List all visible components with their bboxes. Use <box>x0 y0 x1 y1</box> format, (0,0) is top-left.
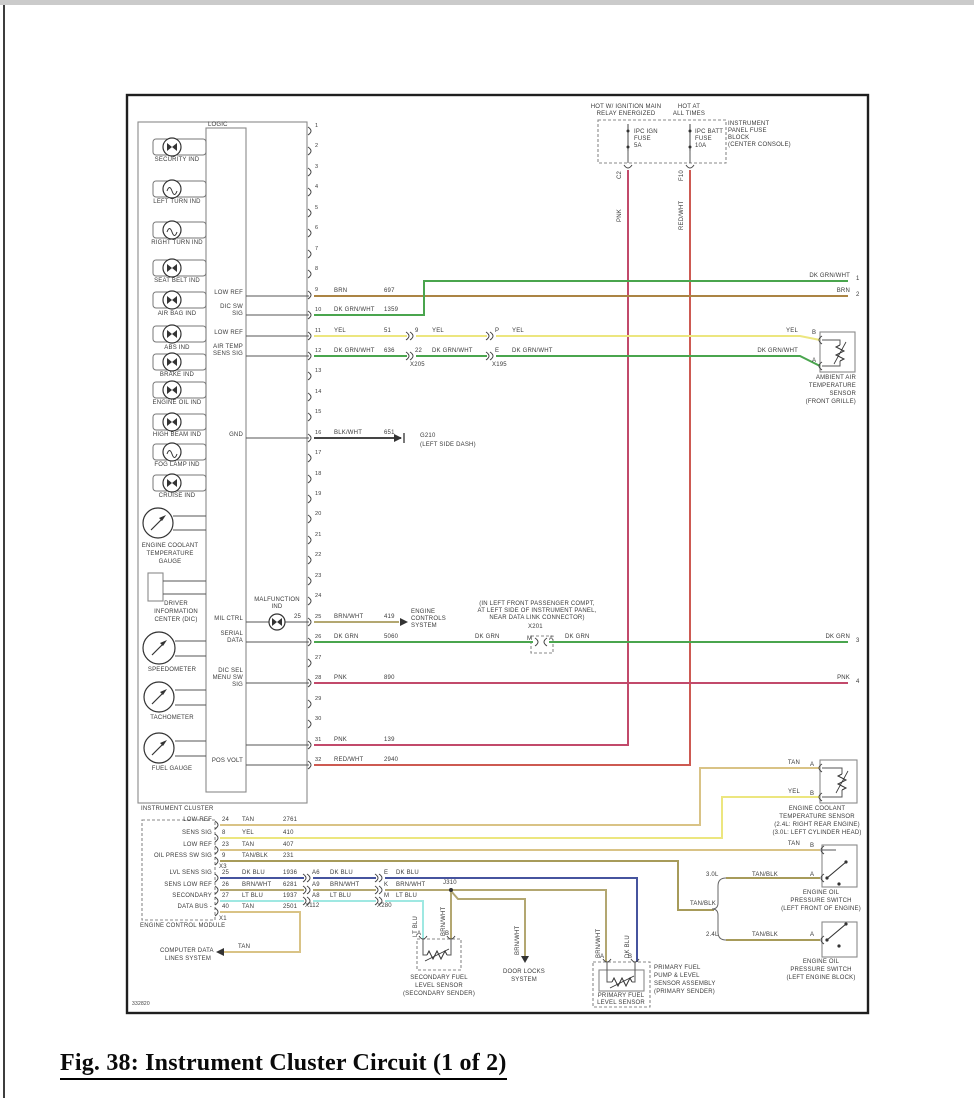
fuse-icon <box>627 130 630 133</box>
ground-icon <box>394 434 402 442</box>
connector-socket-icon <box>624 165 632 168</box>
switch-icon <box>827 862 846 878</box>
connector-pin-icon <box>308 147 311 155</box>
component-box <box>822 845 857 887</box>
diagram-line <box>822 340 840 345</box>
brace-icon <box>712 878 726 940</box>
diagram-line <box>632 962 635 982</box>
connector-gap <box>533 638 549 646</box>
arrow-down-icon <box>521 956 529 963</box>
connector-pin-icon <box>308 209 311 217</box>
wire-yel <box>220 797 820 838</box>
right-turn-ind-icon <box>163 221 181 239</box>
diagram-line <box>822 768 842 774</box>
arrow-left-icon <box>216 948 224 956</box>
wire-dkgrnwht <box>314 356 820 366</box>
arrow-right-icon <box>400 618 408 626</box>
wire-ltblu <box>220 901 423 939</box>
component-box <box>142 820 215 920</box>
component-box <box>206 128 246 792</box>
component-box <box>598 120 726 163</box>
figure-border <box>127 95 868 1013</box>
connector-pin-icon <box>308 515 311 523</box>
connector-pin-icon <box>308 720 311 728</box>
connector-pin-icon <box>308 372 311 380</box>
switch-icon <box>837 944 840 947</box>
connector-pin-icon <box>308 270 311 278</box>
connector-pin-icon <box>308 393 311 401</box>
wire-tanblk <box>220 861 714 910</box>
switch-icon <box>844 922 847 925</box>
connector-pin-icon <box>308 413 311 421</box>
connector-pin-icon <box>308 291 311 299</box>
diagram-line <box>607 962 612 982</box>
connector-pin-icon <box>308 454 311 462</box>
component-box <box>593 962 650 1007</box>
component-box <box>599 970 644 991</box>
connector-pin-icon <box>308 188 311 196</box>
wire-redwht <box>314 170 690 765</box>
figure-caption: Fig. 38: Instrument Cluster Circuit (1 o… <box>60 1050 507 1080</box>
connector-pin-icon <box>308 127 311 135</box>
switch-icon <box>827 924 846 940</box>
connector-pin-icon <box>308 597 311 605</box>
wire-dkgrnwht <box>314 281 848 315</box>
fuse-icon <box>627 146 630 149</box>
connector-pin-icon <box>308 700 311 708</box>
fuse-icon <box>689 130 692 133</box>
junction-dot <box>449 888 453 892</box>
component-box <box>148 573 163 601</box>
wire-pnk <box>314 170 628 745</box>
wiring-diagram-canvas <box>0 0 974 1098</box>
connector-pin-icon <box>308 659 311 667</box>
connector-pin-icon <box>308 556 311 564</box>
connector-pin-icon <box>308 536 311 544</box>
service-manual-page: 1234567891011121314151617181920212223242… <box>0 0 974 1098</box>
wire-brnwht <box>451 891 525 956</box>
diagram-line <box>822 361 840 366</box>
wire-tan <box>220 912 300 952</box>
left-turn-ind-icon <box>163 180 181 198</box>
connector-pin-icon <box>308 495 311 503</box>
connector-socket-icon <box>686 165 694 168</box>
connector-pin-icon <box>308 229 311 237</box>
wire-yel <box>314 336 820 340</box>
fog-lamp-ind-icon <box>163 443 181 461</box>
fuse-icon <box>689 146 692 149</box>
switch-icon <box>837 882 840 885</box>
diagram-line <box>822 790 842 797</box>
switch-icon <box>844 860 847 863</box>
diagram-line <box>423 939 427 955</box>
connector-pin-icon <box>308 168 311 176</box>
diagram-line <box>447 939 451 955</box>
connector-pin-icon <box>308 475 311 483</box>
connector-pin-icon <box>308 250 311 258</box>
connector-pin-icon <box>308 577 311 585</box>
